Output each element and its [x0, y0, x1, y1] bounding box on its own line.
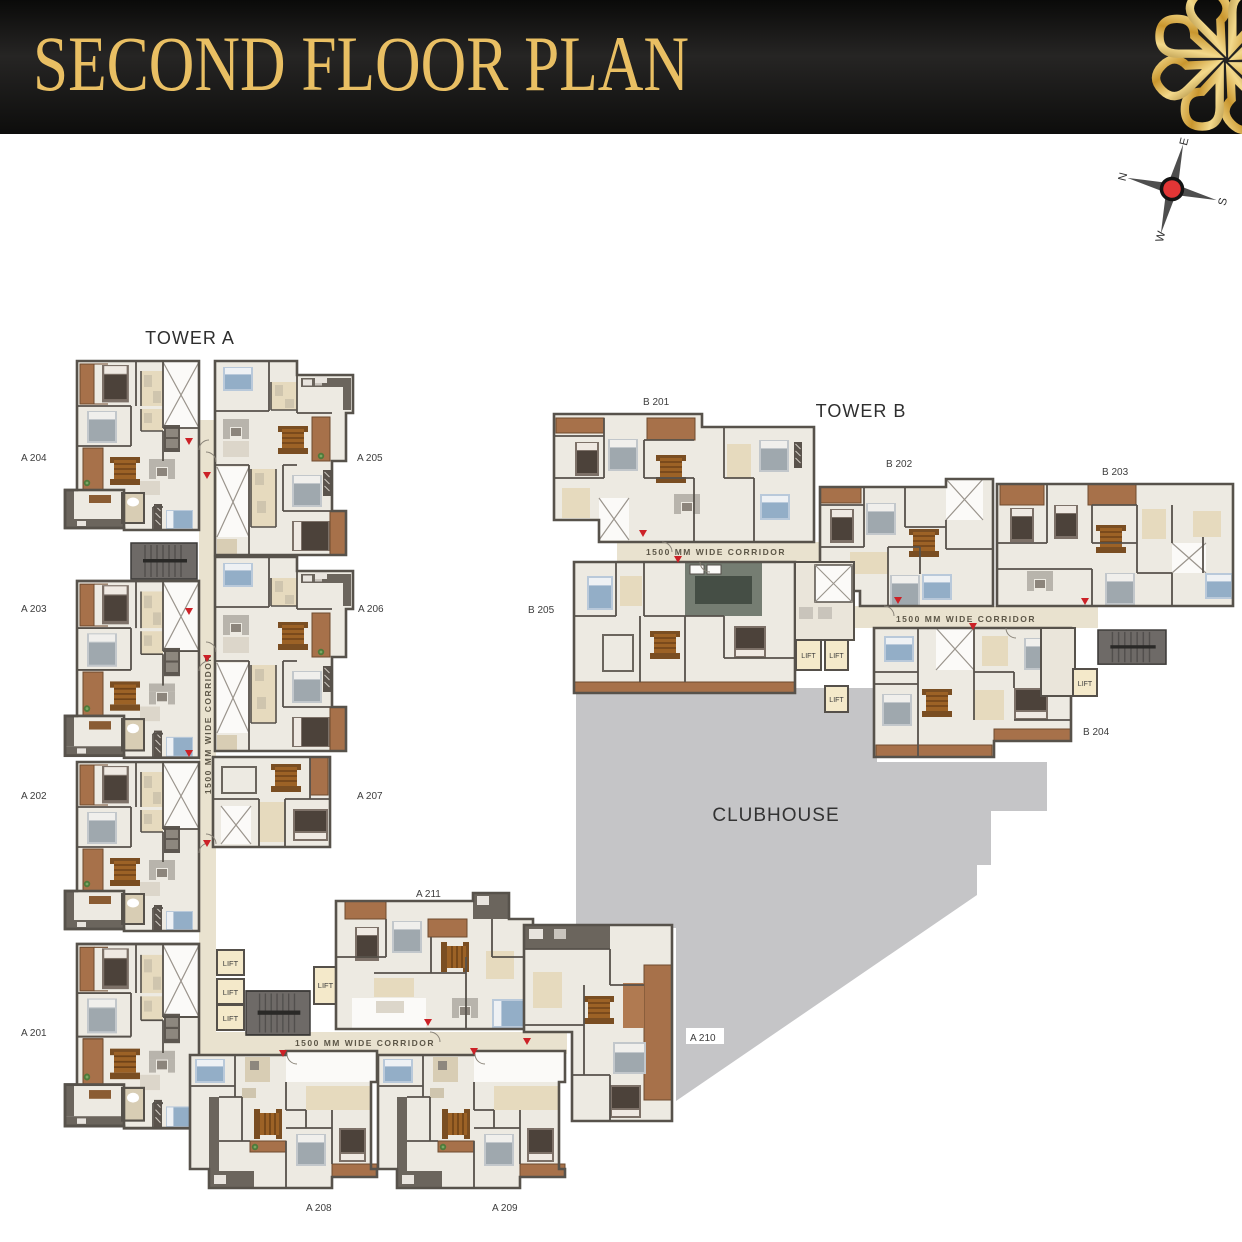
svg-text:TOWER A: TOWER A [145, 328, 235, 348]
svg-text:A 205: A 205 [357, 453, 383, 464]
svg-text:1500 MM WIDE CORRIDOR: 1500 MM WIDE CORRIDOR [896, 614, 1036, 624]
svg-text:A 211: A 211 [416, 889, 441, 900]
svg-text:A 208: A 208 [306, 1203, 332, 1214]
svg-text:A 207: A 207 [357, 791, 383, 802]
svg-text:B 205: B 205 [528, 605, 555, 616]
svg-text:B 202: B 202 [886, 459, 913, 470]
svg-text:LIFT: LIFT [318, 981, 334, 990]
svg-text:A 201: A 201 [21, 1028, 47, 1039]
svg-text:1500 MM WIDE CORRIDOR: 1500 MM WIDE CORRIDOR [295, 1038, 435, 1048]
svg-text:A 206: A 206 [358, 604, 384, 615]
svg-text:A 203: A 203 [21, 604, 47, 615]
svg-text:LIFT: LIFT [801, 653, 816, 660]
svg-text:A 210: A 210 [690, 1033, 716, 1044]
svg-text:TOWER B: TOWER B [816, 401, 907, 421]
svg-text:LIFT: LIFT [829, 653, 844, 660]
svg-text:B 204: B 204 [1083, 727, 1110, 738]
svg-text:1500 MM WIDE CORRIDOR: 1500 MM WIDE CORRIDOR [646, 547, 786, 557]
svg-text:SECOND FLOOR PLAN: SECOND FLOOR PLAN [33, 20, 689, 107]
svg-text:A 202: A 202 [21, 791, 47, 802]
svg-text:B 201: B 201 [643, 397, 670, 408]
svg-text:LIFT: LIFT [1078, 681, 1093, 688]
svg-text:1500 MM WIDE CORRIDOR: 1500 MM WIDE CORRIDOR [203, 654, 213, 794]
svg-text:CLUBHOUSE: CLUBHOUSE [712, 805, 839, 826]
svg-text:LIFT: LIFT [829, 697, 844, 704]
svg-text:B 203: B 203 [1102, 467, 1129, 478]
svg-text:A 209: A 209 [492, 1203, 518, 1214]
svg-text:A 204: A 204 [21, 453, 47, 464]
